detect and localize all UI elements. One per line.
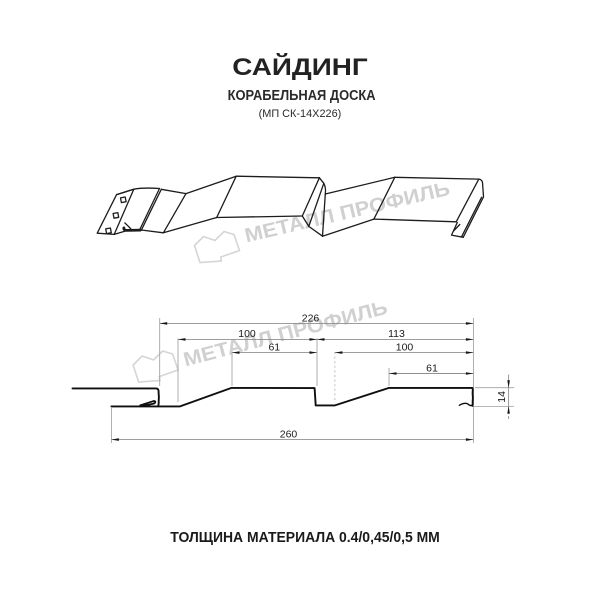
svg-text:14: 14: [496, 391, 508, 403]
svg-text:260: 260: [280, 428, 298, 440]
svg-text:61: 61: [426, 363, 438, 375]
svg-text:КОРАБЕЛЬНАЯ ДОСКА: КОРАБЕЛЬНАЯ ДОСКА: [228, 88, 376, 104]
svg-text:113: 113: [388, 328, 405, 340]
svg-text:(МП СК-14Х226): (МП СК-14Х226): [259, 108, 342, 120]
svg-text:61: 61: [268, 342, 280, 354]
svg-text:100: 100: [238, 328, 256, 340]
svg-text:ТОЛЩИНА МАТЕРИАЛА 0.4/0,45/0,5: ТОЛЩИНА МАТЕРИАЛА 0.4/0,45/0,5 ММ: [170, 530, 440, 546]
svg-text:100: 100: [396, 342, 414, 354]
svg-text:САЙДИНГ: САЙДИНГ: [232, 53, 368, 81]
svg-text:226: 226: [302, 313, 320, 325]
